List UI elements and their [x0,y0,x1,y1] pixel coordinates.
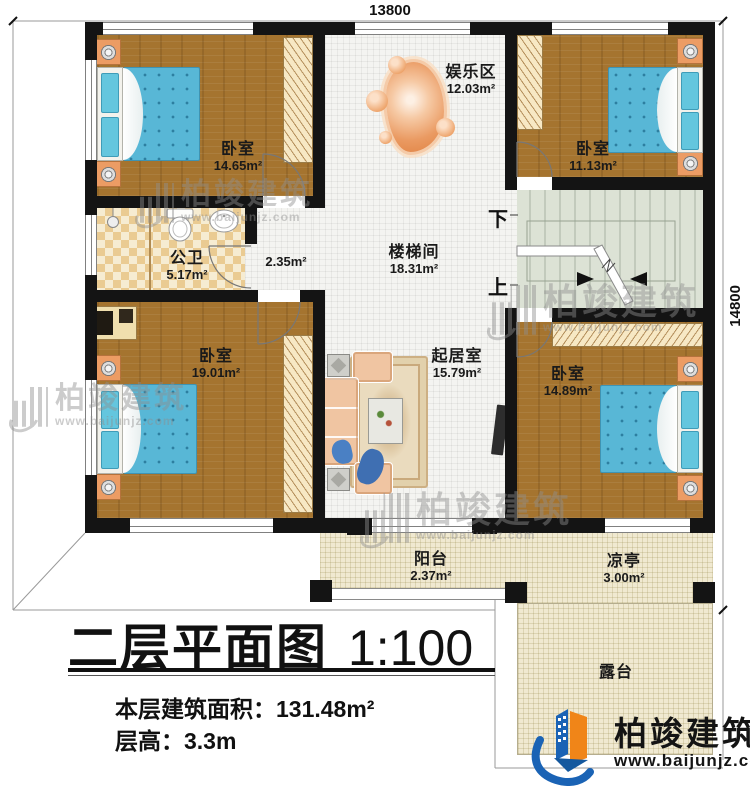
brand-name: 柏竣建筑 [614,717,750,752]
stairs-down-label: 下 [488,203,508,232]
room-label-bedroom-tr: 卧室 11.13m² [548,141,638,173]
toilet-icon [167,209,193,241]
room-label-balcony: 阳台 2.37m² [386,551,476,583]
room-label-bathroom: 公卫 5.17m² [142,250,232,282]
title-underline [68,668,495,672]
floor-plan-page: 卧室 14.65m² 卧室 11.13m² 公卫 5.17m² 2.35m² 娱… [0,0,750,790]
dimension-ticks [9,17,727,614]
room-label-bedroom-mr: 卧室 14.89m² [523,366,613,398]
room-label-terrace: 露台 [571,664,661,682]
brand-logo: 柏竣建筑 www.baijunjz.com [526,702,750,786]
brand-website: www.baijunjz.com [614,751,750,771]
room-label-stairwell: 楼梯间 18.31m² [369,244,459,276]
shower-icon [108,208,119,228]
room-label-hallway: 2.35m² [255,255,317,270]
room-label-bedroom-tl: 卧室 14.65m² [193,141,283,173]
brand-logo-icon [526,702,606,786]
floor-height-line: 层高：3.3m [115,722,236,756]
dimension-height: 14800 [727,285,744,327]
dimension-width: 13800 [338,2,442,19]
floor-area-line: 本层建筑面积：131.48m² [115,690,374,724]
room-label-pavilion: 凉亭 3.00m² [579,553,669,585]
room-label-bedroom-ml: 卧室 19.01m² [171,348,261,380]
room-label-entertainment: 娱乐区 12.03m² [426,64,516,96]
room-label-living: 起居室 15.79m² [412,348,502,380]
sink-icon [210,210,238,232]
stairs-up-label: 上 [488,271,508,300]
title-underline-thin [68,675,495,676]
